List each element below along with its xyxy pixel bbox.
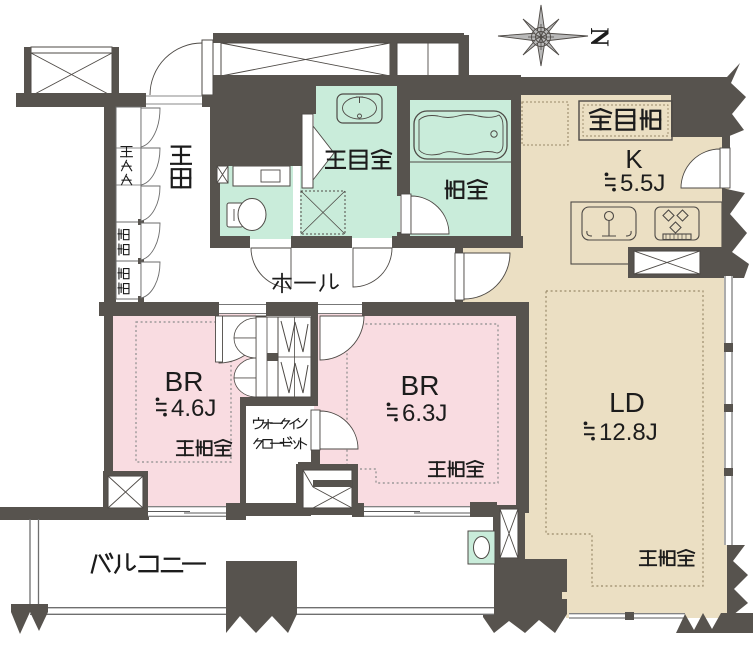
svg-text:5.5J: 5.5J xyxy=(620,170,665,197)
svg-text:BR: BR xyxy=(401,370,440,401)
svg-text:N: N xyxy=(585,28,614,47)
svg-text:BR: BR xyxy=(165,366,204,397)
svg-text:6.3J: 6.3J xyxy=(402,400,447,427)
svg-text:12.8J: 12.8J xyxy=(599,419,658,446)
svg-text:LD: LD xyxy=(609,387,645,418)
svg-text:4.6J: 4.6J xyxy=(171,395,216,422)
